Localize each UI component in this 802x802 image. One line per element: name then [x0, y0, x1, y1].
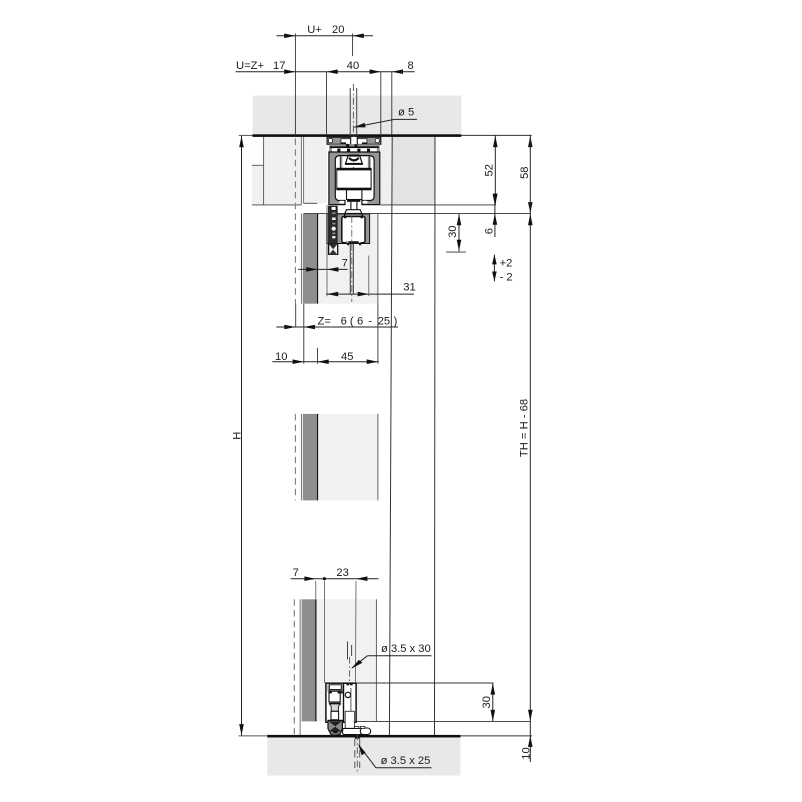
svg-text:6: 6 — [357, 315, 363, 327]
svg-text:40: 40 — [347, 60, 359, 72]
svg-text:ø 3.5 x 25: ø 3.5 x 25 — [381, 755, 431, 767]
svg-text:58: 58 — [519, 166, 531, 178]
svg-text:Z=: Z= — [318, 315, 331, 327]
svg-text:): ) — [394, 315, 398, 327]
svg-text:30: 30 — [447, 225, 459, 237]
svg-text:H: H — [232, 432, 244, 440]
svg-text:30: 30 — [481, 696, 493, 708]
svg-text:ø 5: ø 5 — [398, 107, 414, 119]
svg-text:17: 17 — [273, 60, 285, 72]
svg-text:6: 6 — [483, 228, 495, 234]
svg-text:8: 8 — [408, 60, 414, 72]
svg-text:23: 23 — [336, 567, 348, 579]
svg-text:52: 52 — [484, 164, 496, 176]
svg-text:31: 31 — [403, 282, 415, 294]
svg-text:U+: U+ — [307, 24, 322, 36]
svg-text:10: 10 — [520, 747, 532, 759]
svg-text:-: - — [368, 315, 372, 327]
svg-text:U=Z+: U=Z+ — [236, 60, 264, 72]
svg-text:7: 7 — [342, 258, 348, 270]
svg-text:TH = H - 68: TH = H - 68 — [519, 399, 531, 457]
svg-text:+2: +2 — [500, 258, 513, 270]
svg-text:20: 20 — [332, 24, 344, 36]
svg-text:25: 25 — [378, 315, 390, 327]
svg-text:6 (: 6 ( — [341, 315, 354, 327]
svg-text:10: 10 — [275, 351, 287, 363]
svg-text:7: 7 — [293, 567, 299, 579]
svg-text:ø 3.5 x 30: ø 3.5 x 30 — [381, 643, 431, 655]
svg-text:- 2: - 2 — [500, 271, 513, 283]
svg-text:45: 45 — [341, 351, 353, 363]
